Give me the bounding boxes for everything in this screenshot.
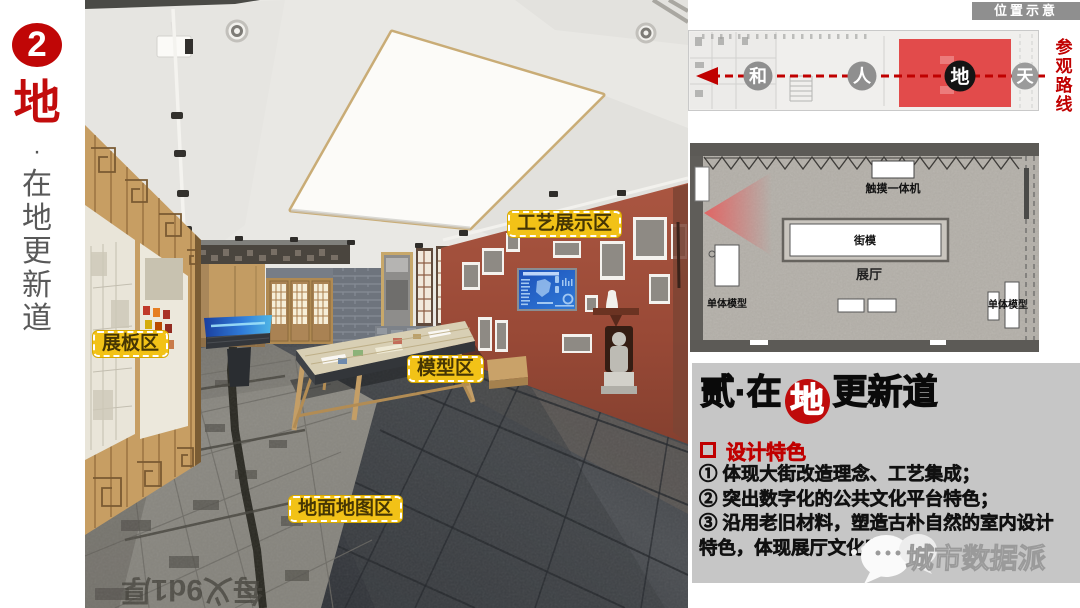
svg-text:城市数据派: 城市数据派 xyxy=(905,542,1047,574)
svg-text:触摸一体机: 触摸一体机 xyxy=(865,181,921,195)
svg-text:人: 人 xyxy=(853,67,872,87)
svg-text:天: 天 xyxy=(1017,67,1035,86)
svg-text:街模: 街模 xyxy=(853,233,877,247)
svg-text:地: 地 xyxy=(950,65,969,88)
svg-text:单体模型: 单体模型 xyxy=(707,297,747,310)
svg-text:单体模型: 单体模型 xyxy=(988,298,1028,311)
svg-text:展厅: 展厅 xyxy=(856,267,882,282)
svg-text:和: 和 xyxy=(749,67,767,87)
